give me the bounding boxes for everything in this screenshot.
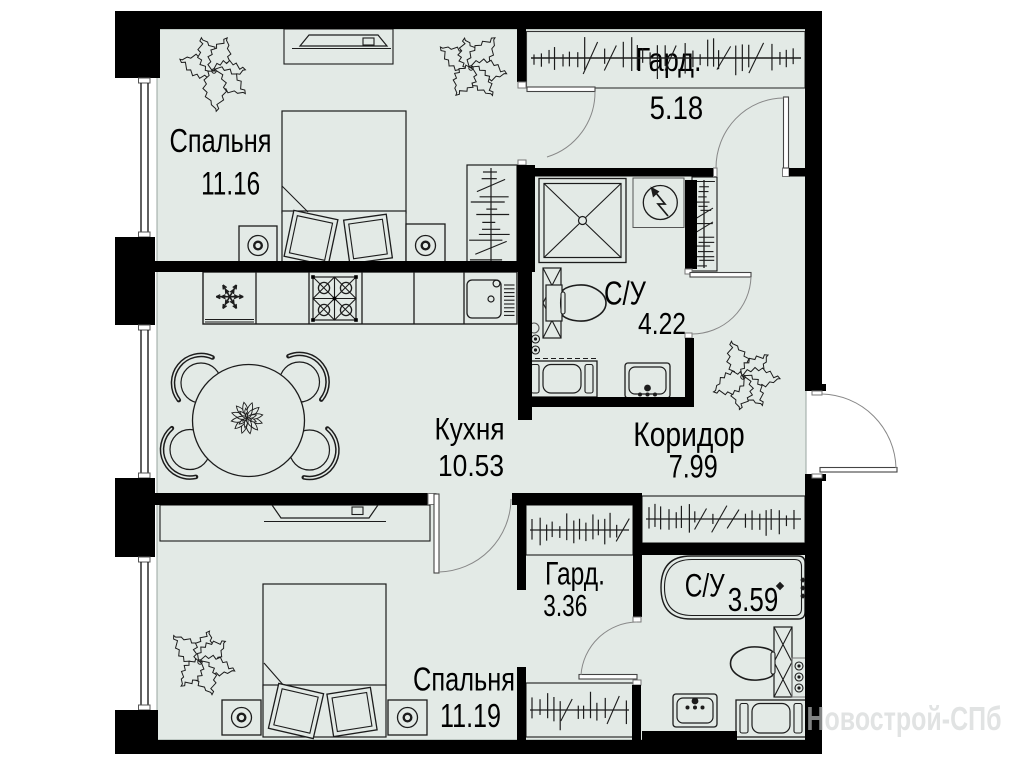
svg-text:3.59: 3.59: [728, 581, 779, 618]
svg-text:4.22: 4.22: [638, 306, 686, 341]
svg-text:7.99: 7.99: [669, 449, 718, 485]
svg-text:Спальня: Спальня: [413, 661, 515, 698]
svg-text:3.36: 3.36: [543, 589, 587, 623]
svg-text:11.19: 11.19: [440, 697, 501, 734]
svg-text:5.18: 5.18: [650, 90, 704, 126]
svg-text:Новострой-СПб: Новострой-СПб: [807, 701, 1002, 738]
svg-text:Гард.: Гард.: [545, 556, 605, 592]
svg-text:С/У: С/У: [685, 568, 726, 604]
svg-text:11.16: 11.16: [201, 166, 260, 202]
svg-text:Гард.: Гард.: [636, 41, 702, 78]
svg-text:Кухня: Кухня: [435, 411, 505, 447]
svg-text:Спальня: Спальня: [170, 122, 272, 159]
svg-text:10.53: 10.53: [438, 448, 504, 483]
